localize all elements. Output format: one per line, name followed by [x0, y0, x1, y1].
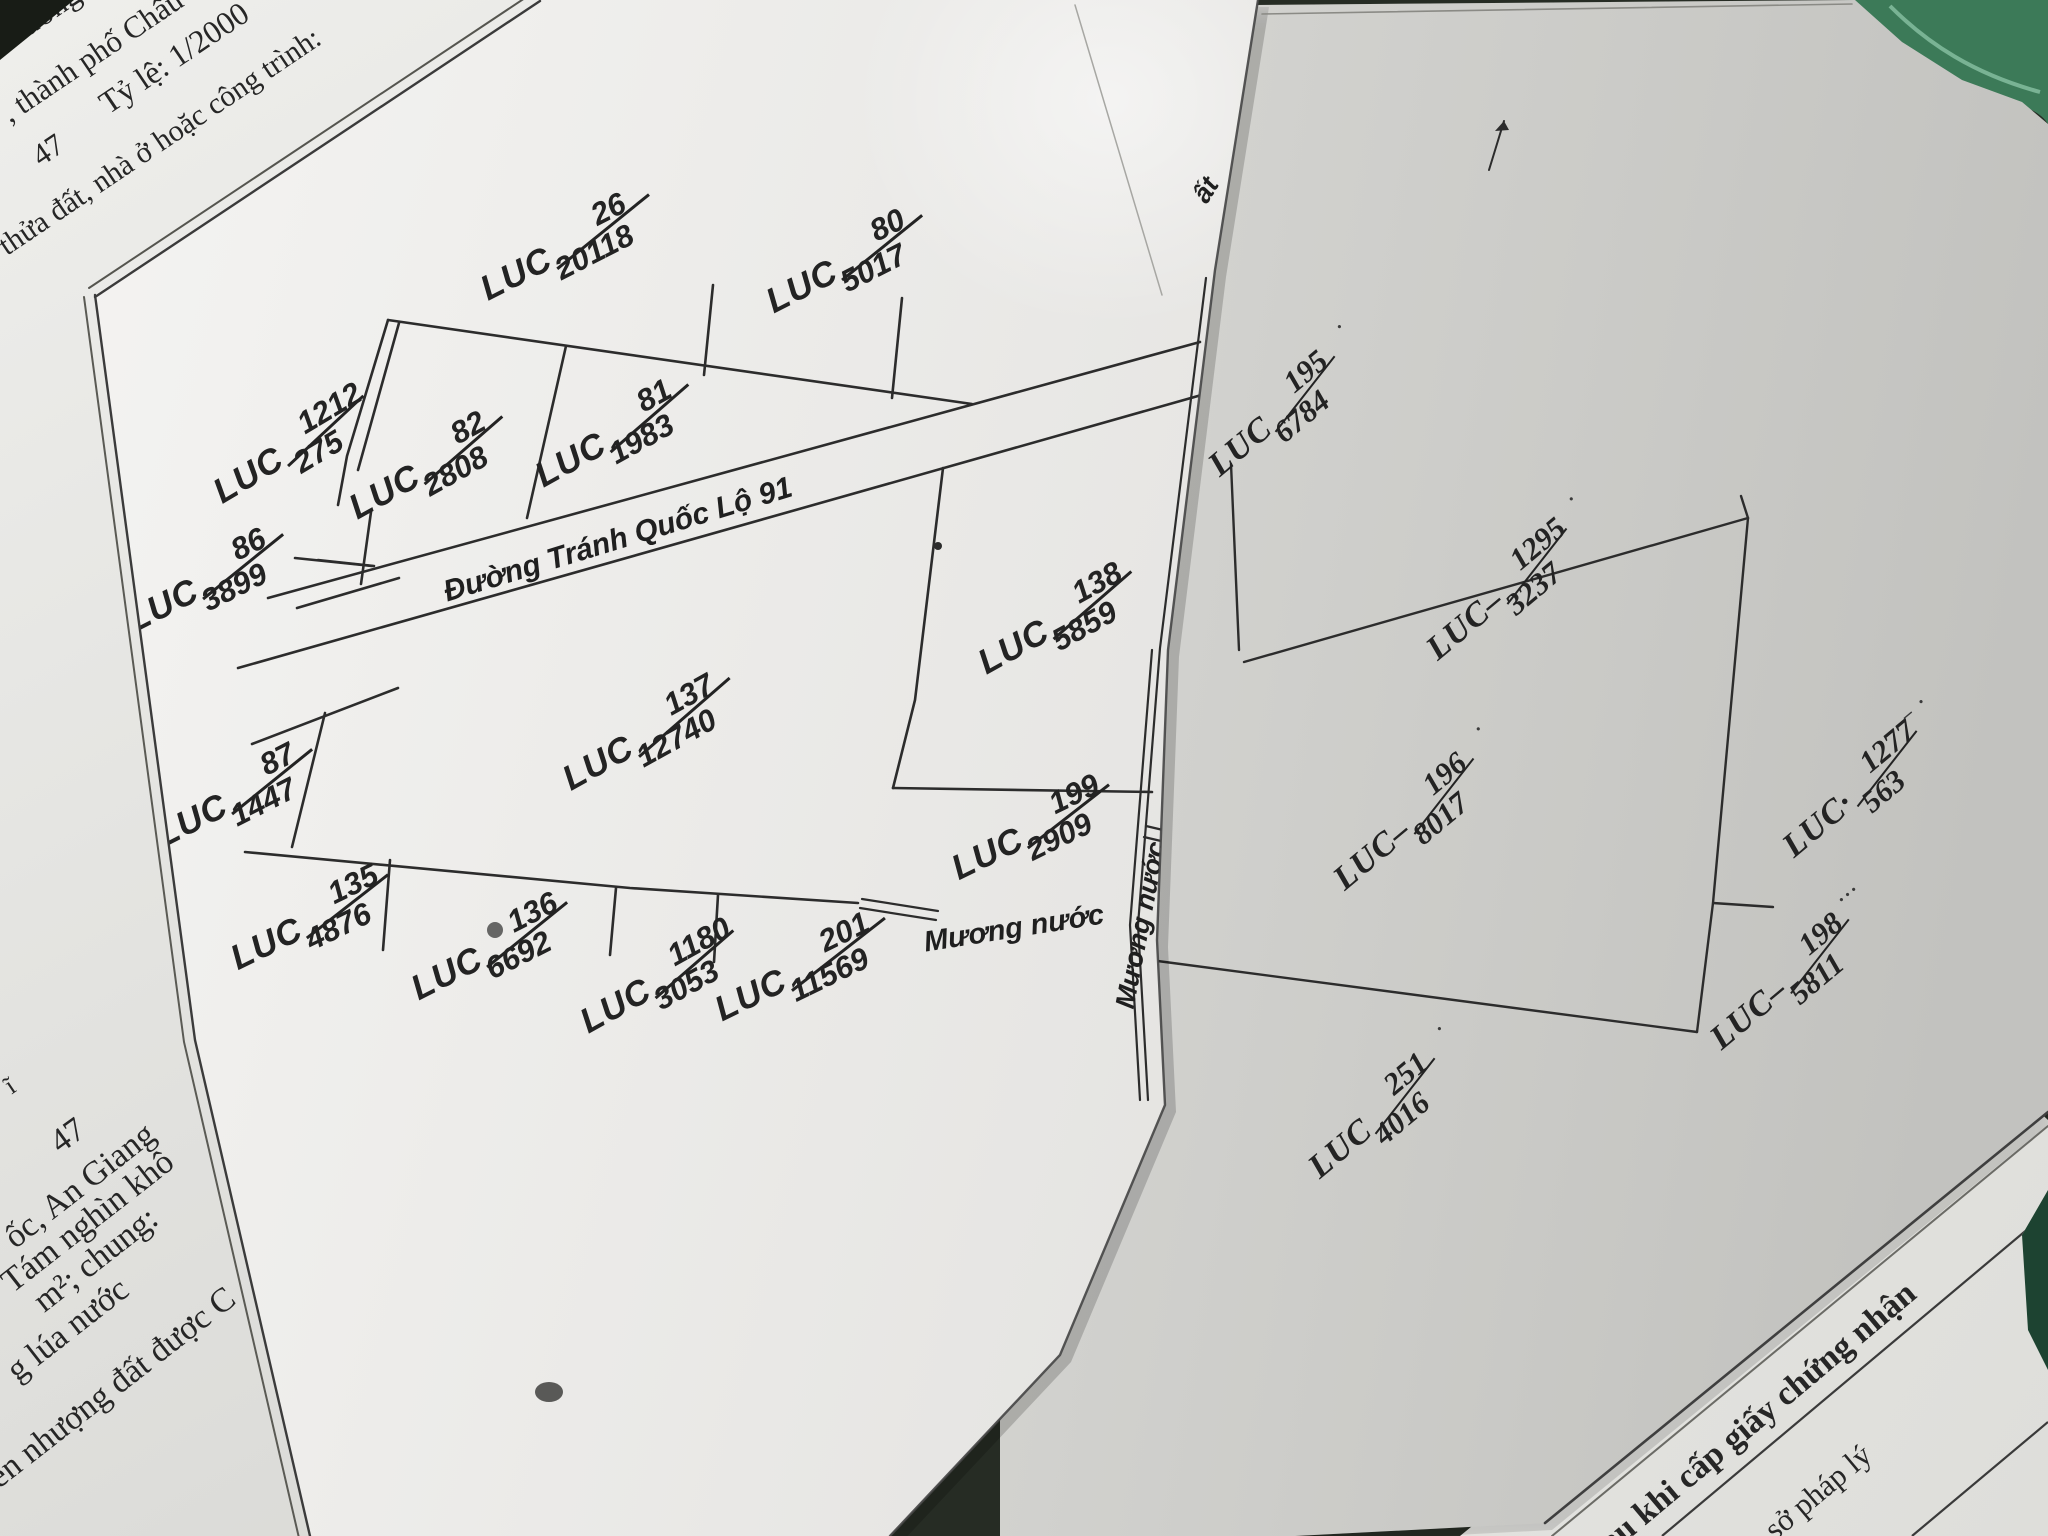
- parcel-label: LUC13712740: [550, 665, 740, 809]
- parcel-landuse-code: LUC: [342, 456, 427, 527]
- parcel-area: 1983: [603, 408, 679, 469]
- parcel-label: LUC805017: [754, 200, 930, 331]
- parcel-number: 80: [865, 203, 910, 247]
- doc-page-number-bottom: 47: [43, 1111, 93, 1162]
- parcel-number-over-area: 1212275: [272, 382, 374, 478]
- fraction-tail: ·: [1470, 718, 1489, 739]
- parcel-number-over-area: 863899: [190, 519, 291, 612]
- parcel-area: 2909: [1021, 807, 1097, 866]
- cert-subheader-line: sở pháp lý: [1757, 1437, 1878, 1536]
- parcel-landuse-code: LUC: [224, 909, 309, 978]
- parcel-landuse-code: LUC: [573, 970, 658, 1041]
- parcel-number-over-area: 1366692: [474, 887, 575, 980]
- parcel-label: LUC·1277563– ·: [1767, 721, 1933, 875]
- parcel-number-over-area: 1992909: [1015, 769, 1115, 861]
- parcel-number-over-area: 1354876: [294, 859, 394, 951]
- parcel-area: 6692: [480, 925, 556, 984]
- parcel-landuse-code: LUC: [206, 439, 291, 512]
- fold-text-fragment: ất: [1186, 172, 1225, 209]
- parcel-label: LUC811983: [523, 370, 698, 505]
- parcel-area: 5859: [1046, 595, 1122, 656]
- parcel-number-over-area: 822808: [410, 402, 511, 497]
- parcel-number: 136: [502, 886, 562, 938]
- parcel-label: LUC871447: [144, 734, 320, 865]
- parcel-number: 82: [445, 405, 490, 449]
- parcel-label: LUC2620118: [469, 181, 658, 319]
- photo-of-cadastral-documents: Dương, thành phố Châu47Tỷ lệ: 1/2000thửa…: [0, 0, 2048, 1536]
- parcel-label: LUC1366692: [399, 887, 575, 1018]
- road-label: Đường Tránh Quốc Lộ 91: [440, 471, 797, 610]
- parcel-number: 196: [1416, 746, 1472, 800]
- parcel-landuse-code: LUC: [759, 252, 844, 322]
- fraction-tail: ·: [1331, 316, 1350, 337]
- parcel-label: LUC1354876: [219, 859, 395, 988]
- parcel-number-over-area: 2620118: [543, 181, 657, 281]
- parcel-landuse-code: LUC: [556, 727, 641, 798]
- parcel-number-over-area: 20111569: [779, 904, 893, 1003]
- parcel-landuse-code: LUC: [971, 611, 1056, 682]
- parcel-number: 198: [1792, 906, 1848, 960]
- parcel-number-over-area: 811983: [596, 370, 697, 465]
- parcel-number: 86: [226, 522, 271, 566]
- parcel-label: LUC1385859: [966, 557, 1141, 692]
- parcel-label: LUC1956784·: [1193, 346, 1352, 493]
- doc-fragment-i: ĩ: [0, 1072, 21, 1101]
- parcel-label: LUC1992909: [940, 769, 1116, 898]
- parcel-number: 138: [1067, 556, 1128, 609]
- parcel-label: LUC20111569: [703, 904, 892, 1040]
- parcel-number: 81: [631, 373, 676, 417]
- parcel-landuse-code: LUC: [528, 424, 613, 495]
- parcel-label: LUC–1985811···: [1694, 909, 1865, 1067]
- parcel-area: 563: [1855, 764, 1911, 818]
- doc-page-number-top: 47: [25, 126, 71, 173]
- parcel-area: 2808: [417, 440, 493, 501]
- parcel-number: 251: [1378, 1046, 1434, 1100]
- parcel-number: 1295: [1503, 511, 1571, 575]
- parcel-number: 199: [1044, 768, 1104, 819]
- parcel-landuse-code: LUC: [474, 239, 559, 309]
- fraction-tail: ···: [1833, 879, 1864, 910]
- parcel-area: 4876: [300, 897, 376, 956]
- parcel-label: LUC–12953237·: [1411, 519, 1583, 678]
- canal-label-horizontal: Mương nước: [922, 898, 1107, 959]
- parcel-area: 275: [288, 425, 349, 479]
- parcel-number: 135: [323, 858, 383, 909]
- parcel-number: 87: [255, 737, 300, 781]
- parcel-number-over-area: 13712740: [623, 665, 740, 768]
- parcel-number-over-area: 1385859: [1039, 557, 1140, 652]
- parcel-number: 195: [1278, 344, 1334, 398]
- parcel-label: LUC–1968017·: [1318, 749, 1490, 908]
- parcel-landuse-code: LUC·: [1775, 784, 1861, 865]
- parcel-number: 201: [814, 906, 874, 957]
- parcel-number-over-area: 871447: [219, 734, 320, 827]
- parcel-area: 20118: [550, 219, 639, 285]
- parcel-label: LUC863899: [115, 519, 291, 650]
- parcel-landuse-code: LUC: [404, 939, 489, 1009]
- parcel-landuse-code: LUC: [945, 819, 1030, 888]
- parcel-label: LUC2514016·: [1293, 1048, 1452, 1195]
- parcel-area: 3899: [196, 557, 272, 616]
- parcel-area: 1447: [225, 772, 301, 831]
- fraction-tail: ·: [1431, 1018, 1450, 1039]
- parcel-number-over-area: 805017: [829, 200, 930, 293]
- fraction-tail: ·: [1563, 488, 1582, 509]
- parcel-area: 5017: [835, 238, 911, 297]
